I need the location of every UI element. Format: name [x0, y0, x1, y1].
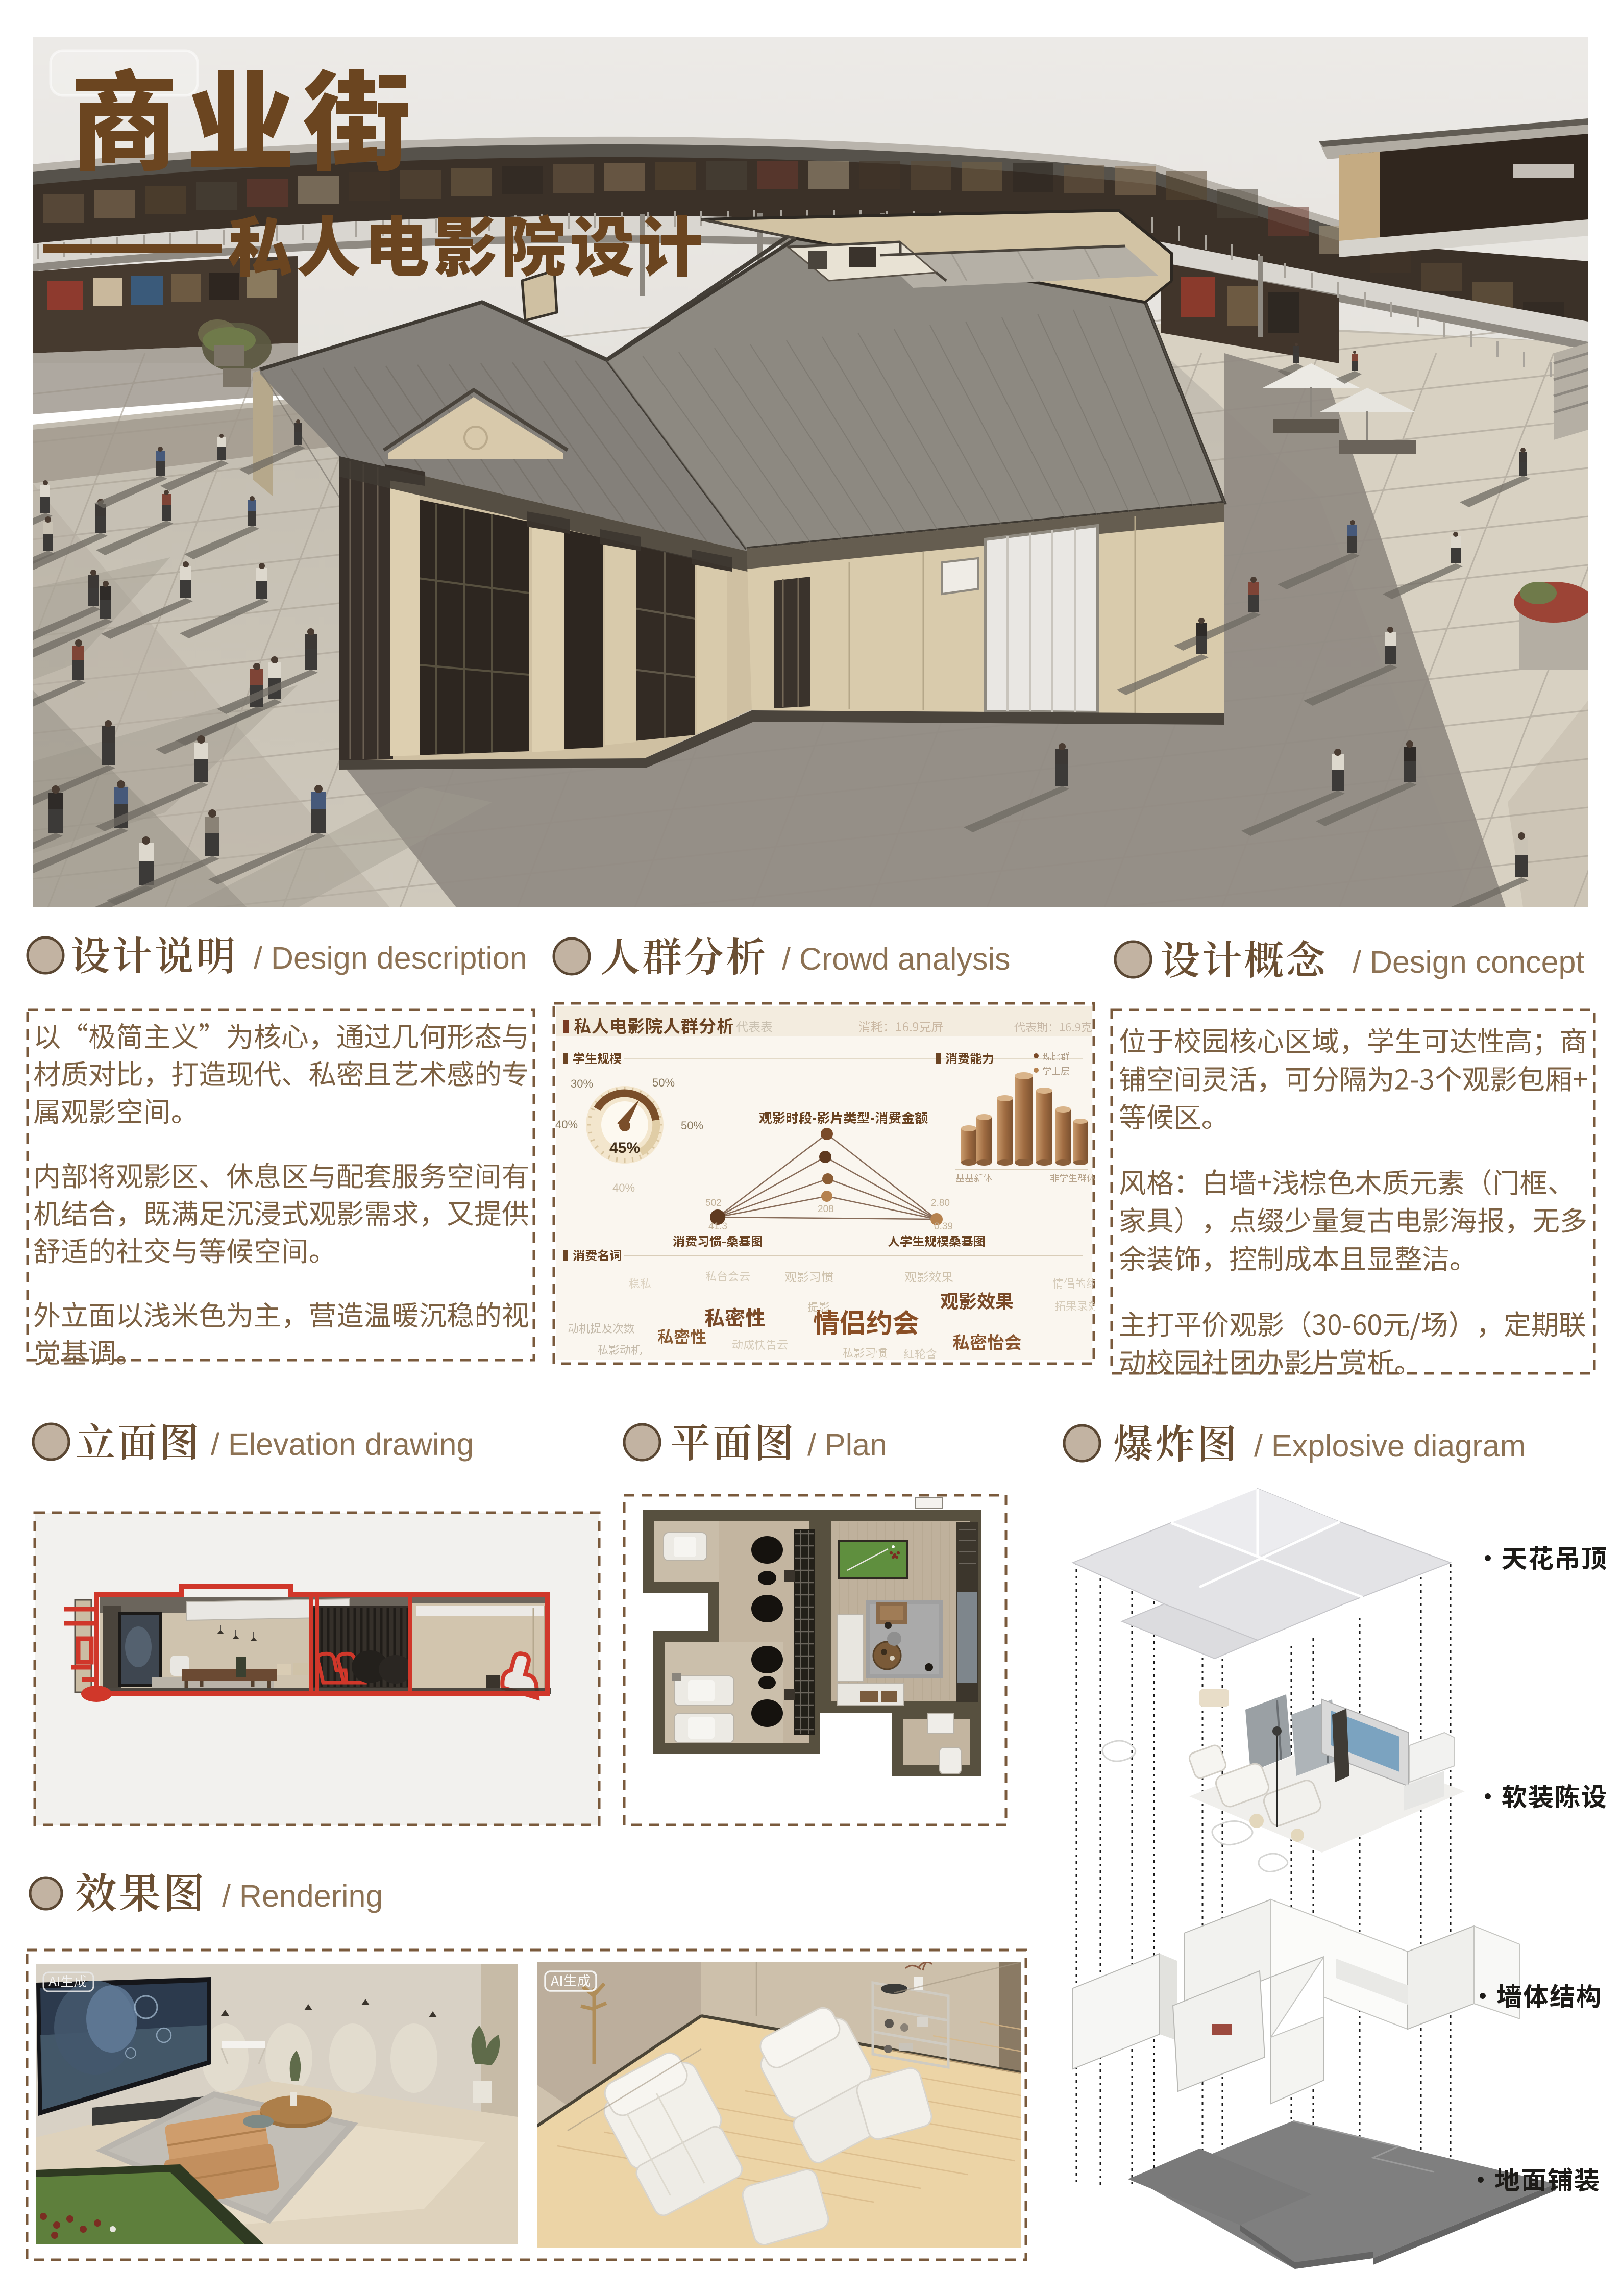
svg-text:代表表: 代表表 — [736, 1021, 773, 1034]
svg-text:208: 208 — [818, 1204, 834, 1215]
svg-text:0.39: 0.39 — [934, 1221, 953, 1232]
svg-text:502: 502 — [705, 1198, 722, 1208]
svg-text:30%: 30% — [571, 1077, 593, 1090]
svg-text:40%: 40% — [612, 1181, 635, 1194]
svg-text:40%: 40% — [555, 1118, 578, 1131]
svg-text:50%: 50% — [681, 1119, 703, 1132]
svg-text:45%: 45% — [609, 1140, 640, 1156]
svg-text:50%: 50% — [652, 1076, 675, 1089]
svg-text:41.3: 41.3 — [708, 1221, 727, 1232]
svg-text:2.80: 2.80 — [931, 1198, 950, 1208]
